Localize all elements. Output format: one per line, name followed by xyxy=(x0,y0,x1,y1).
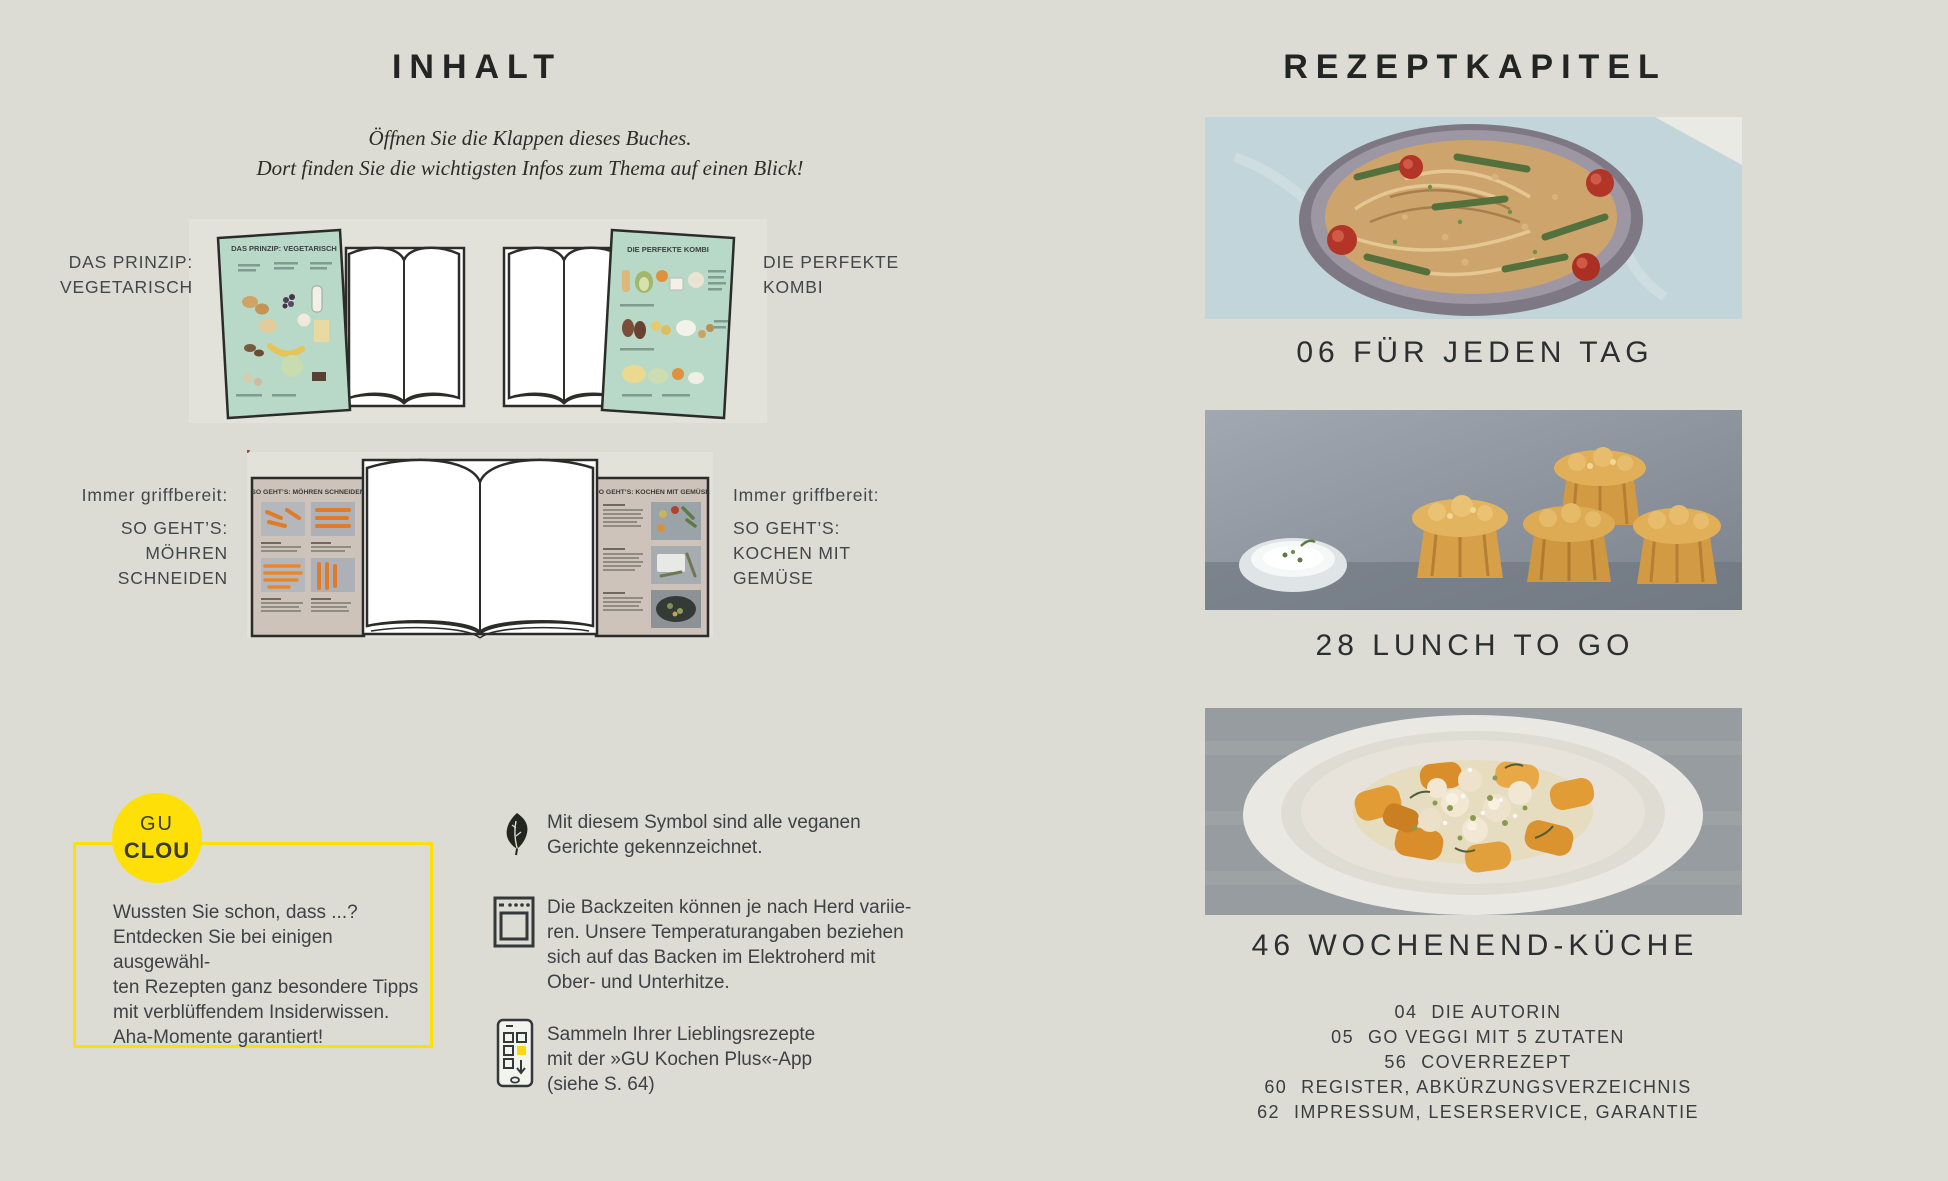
book2-illustration: DIE PERFEKTE KOMBI xyxy=(500,226,740,422)
intro-text: Öffnen Sie die Klappen dieses Buches. Do… xyxy=(180,123,880,183)
toc-list: 04 DIE AUTORIN 05 GO VEGGI MIT 5 ZUTATEN… xyxy=(1160,1000,1796,1125)
muffin-front-1 xyxy=(1412,495,1508,578)
clou-line-4: mit verblüffendem Insiderwissen. xyxy=(113,1000,433,1025)
gu-badge-line2: CLOU xyxy=(124,838,190,864)
book-spread: INHALT Öffnen Sie die Klappen dieses Buc… xyxy=(0,0,1948,1181)
book3-right-line3: GEMÜSE xyxy=(733,566,923,591)
app-info-text: Sammeln Ihrer Lieblingsrezepte mit der »… xyxy=(547,1022,927,1097)
clou-line-5: Aha-Momente garantiert! xyxy=(113,1025,433,1050)
book3-left-intro: Immer griffbereit: xyxy=(38,483,228,508)
book2-flap-title: DIE PERFEKTE KOMBI xyxy=(627,245,709,254)
chapter-caption-1: 06 FÜR JEDEN TAG xyxy=(1205,336,1745,370)
book3-left-line1: SO GEHT’S: xyxy=(38,516,228,541)
toc-label-1: DIE AUTORIN xyxy=(1431,1000,1561,1025)
oven-info-line1: Die Backzeiten können je nach Herd varii… xyxy=(547,895,947,920)
left-beige-flap: SO GEHT’S: MÖHREN SCHNEIDEN xyxy=(251,478,364,636)
app-info-line3: (siehe S. 64) xyxy=(547,1072,927,1097)
toc-page-2: 05 xyxy=(1331,1025,1354,1050)
toc-label-2: GO VEGGI MIT 5 ZUTATEN xyxy=(1368,1025,1625,1050)
toc-row-3: 56 COVERREZEPT xyxy=(1160,1050,1796,1075)
book3-left-line3: SCHNEIDEN xyxy=(38,566,228,591)
chapter-caption-3: 46 WOCHENEND-KÜCHE xyxy=(1205,929,1745,963)
clou-line-2: Entdecken Sie bei einigen ausgewähl- xyxy=(113,925,433,975)
book2-label-line2: KOMBI xyxy=(763,275,933,300)
muffin-front-2 xyxy=(1523,503,1615,582)
toc-page-4: 60 xyxy=(1264,1075,1287,1100)
book3-right-line2: KOCHEN MIT xyxy=(733,541,923,566)
toc-label-5: IMPRESSUM, LESERSERVICE, GARANTIE xyxy=(1294,1100,1699,1125)
gu-clou-badge: GU CLOU xyxy=(112,793,202,883)
book3-left-label: Immer griffbereit: SO GEHT’S: MÖHREN SCH… xyxy=(38,483,228,591)
book1-label-line1: DAS PRINZIP: xyxy=(43,250,193,275)
book1-illustration: DAS PRINZIP: VEGETARISCH xyxy=(212,226,468,422)
toc-row-2: 05 GO VEGGI MIT 5 ZUTATEN xyxy=(1160,1025,1796,1050)
toc-page-5: 62 xyxy=(1257,1100,1280,1125)
toc-label-4: REGISTER, ABKÜRZUNGSVERZEICHNIS xyxy=(1301,1075,1691,1100)
clou-line-1: Wussten Sie schon, dass ...? xyxy=(113,900,433,925)
chapter-caption-2: 28 LUNCH TO GO xyxy=(1205,629,1745,663)
toc-page-1: 04 xyxy=(1395,1000,1418,1025)
book3-illustration: SO GEHT’S: MÖHREN SCHNEIDEN SO GEHT’S xyxy=(247,450,713,642)
book3-right-label: Immer griffbereit: SO GEHT’S: KOCHEN MIT… xyxy=(733,483,923,591)
book2-label-line1: DIE PERFEKTE xyxy=(763,250,933,275)
gu-badge-line1: GU xyxy=(140,813,174,836)
vegan-leaf-icon xyxy=(503,812,531,856)
clou-text: Wussten Sie schon, dass ...? Entdecken S… xyxy=(113,900,433,1050)
app-info-line2: mit der »GU Kochen Plus«-App xyxy=(547,1047,927,1072)
book3-right-intro: Immer griffbereit: xyxy=(733,483,923,508)
book3-right-flap-title: SO GEHT’S: KOCHEN MIT GEMÜSE xyxy=(594,487,710,496)
app-info-line1: Sammeln Ihrer Lieblingsrezepte xyxy=(547,1022,927,1047)
book1-flap-title: DAS PRINZIP: VEGETARISCH xyxy=(231,244,337,253)
book3-left-flap-title: SO GEHT’S: MÖHREN SCHNEIDEN xyxy=(251,487,364,496)
book2-label: DIE PERFEKTE KOMBI xyxy=(763,250,933,300)
carrot-muffins-photo xyxy=(1205,410,1742,610)
open-book xyxy=(346,248,464,406)
vegan-info-line2: Gerichte gekennzeichnet. xyxy=(547,835,927,860)
open-book xyxy=(363,460,597,638)
clou-line-3: ten Rezepten ganz besondere Tipps xyxy=(113,975,433,1000)
pumpkin-gnocchi-photo xyxy=(1205,708,1742,915)
oven-info-line4: Ober- und Unterhitze. xyxy=(547,970,947,995)
oven-info-text: Die Backzeiten können je nach Herd varii… xyxy=(547,895,947,995)
oven-info-line2: ren. Unsere Temperaturangaben beziehen xyxy=(547,920,947,945)
dip-bowl xyxy=(1239,538,1347,592)
toc-page-3: 56 xyxy=(1384,1050,1407,1075)
vegan-info-line1: Mit diesem Symbol sind alle veganen xyxy=(547,810,927,835)
vegan-info-text: Mit diesem Symbol sind alle veganen Geri… xyxy=(547,810,927,860)
intro-line-1: Öffnen Sie die Klappen dieses Buches. xyxy=(180,123,880,153)
right-page-title: REZEPTKAPITEL xyxy=(1205,48,1745,87)
toc-row-4: 60 REGISTER, ABKÜRZUNGSVERZEICHNIS xyxy=(1160,1075,1796,1100)
oven-info-line3: sich auf das Backen im Elektroherd mit xyxy=(547,945,947,970)
book3-left-line2: MÖHREN xyxy=(38,541,228,566)
noodle-bowl-photo xyxy=(1205,117,1742,319)
oven-icon xyxy=(493,896,535,948)
mint-flap: DIE PERFEKTE KOMBI xyxy=(602,230,734,418)
intro-line-2: Dort finden Sie die wichtigsten Infos zu… xyxy=(180,153,880,183)
recipe-app-phone-icon xyxy=(496,1018,534,1088)
book1-label-line2: VEGETARISCH xyxy=(43,275,193,300)
toc-row-1: 04 DIE AUTORIN xyxy=(1160,1000,1796,1025)
toc-row-5: 62 IMPRESSUM, LESERSERVICE, GARANTIE xyxy=(1160,1100,1796,1125)
toc-label-3: COVERREZEPT xyxy=(1421,1050,1571,1075)
muffin-front-3 xyxy=(1633,505,1721,584)
left-page-title: INHALT xyxy=(0,48,954,87)
book1-label: DAS PRINZIP: VEGETARISCH xyxy=(43,250,193,300)
mint-flap: DAS PRINZIP: VEGETARISCH xyxy=(218,230,350,418)
book3-right-line1: SO GEHT’S: xyxy=(733,516,923,541)
